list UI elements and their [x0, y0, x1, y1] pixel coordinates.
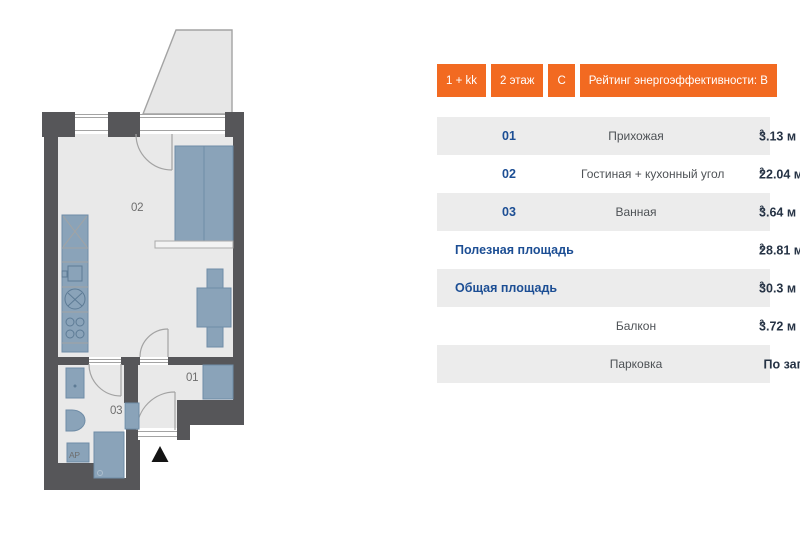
wardrobe	[175, 146, 233, 241]
room-name: Ванная	[581, 205, 691, 219]
table-row: Парковка По запросу	[437, 345, 770, 383]
room-area: 22.04 м2	[759, 166, 764, 181]
room-area: По запросу	[764, 356, 765, 371]
table-row: 03 Ванная 3.64 м2	[437, 193, 770, 231]
area-table: 01 Прихожая 3.13 м2 02 Гостиная + кухонн…	[437, 117, 770, 383]
room-label-ap: AP	[69, 450, 80, 460]
total-label: Общая площадь	[455, 281, 557, 295]
washbasin	[66, 368, 84, 398]
room-label-hall: 01	[186, 372, 198, 384]
badge-floor: 2 этаж	[491, 64, 543, 97]
total-area: 28.81 м2	[759, 242, 764, 257]
washing-machine	[94, 432, 124, 478]
balcony	[143, 30, 232, 114]
room-area: 3.13 м2	[759, 128, 764, 143]
room-label-living: 02	[131, 202, 143, 214]
window-band	[58, 114, 233, 134]
floor-plan: 02 01 03 AP	[0, 0, 280, 533]
badge-category: C	[548, 64, 574, 97]
room-name: Прихожая	[581, 129, 691, 143]
kitchen-unit	[62, 215, 88, 352]
badge-energy-rating: Рейтинг энергоэффективности: B	[580, 64, 777, 97]
table-row: Балкон 3.72 м2	[437, 307, 770, 345]
info-panel: 1 + kk 2 этаж C Рейтинг энергоэффективно…	[437, 64, 770, 383]
table-row: 01 Прихожая 3.13 м2	[437, 117, 770, 155]
room-number: 01	[437, 129, 581, 143]
badge-bar: 1 + kk 2 этаж C Рейтинг энергоэффективно…	[437, 64, 770, 97]
room-name: Балкон	[581, 319, 691, 333]
room-name: Гостиная + кухонный угол	[581, 167, 691, 181]
room-name: Парковка	[581, 357, 691, 371]
room-area: 3.72 м2	[759, 318, 764, 333]
room-number: 03	[437, 205, 581, 219]
room-number: 02	[437, 167, 581, 181]
entrance-arrow-icon	[152, 446, 169, 462]
total-label: Полезная площадь	[455, 243, 574, 257]
table-row: Общая площадь 30.3 м2	[437, 269, 770, 307]
room-area: 3.64 м2	[759, 204, 764, 219]
shelf	[155, 241, 233, 248]
total-area: 30.3 м2	[759, 280, 764, 295]
table-row: Полезная площадь 28.81 м2	[437, 231, 770, 269]
room-label-bath: 03	[110, 405, 122, 417]
hall-cabinet	[125, 403, 139, 429]
table-row: 02 Гостиная + кухонный угол 22.04 м2	[437, 155, 770, 193]
badge-layout: 1 + kk	[437, 64, 486, 97]
hall-wardrobe	[203, 365, 233, 399]
